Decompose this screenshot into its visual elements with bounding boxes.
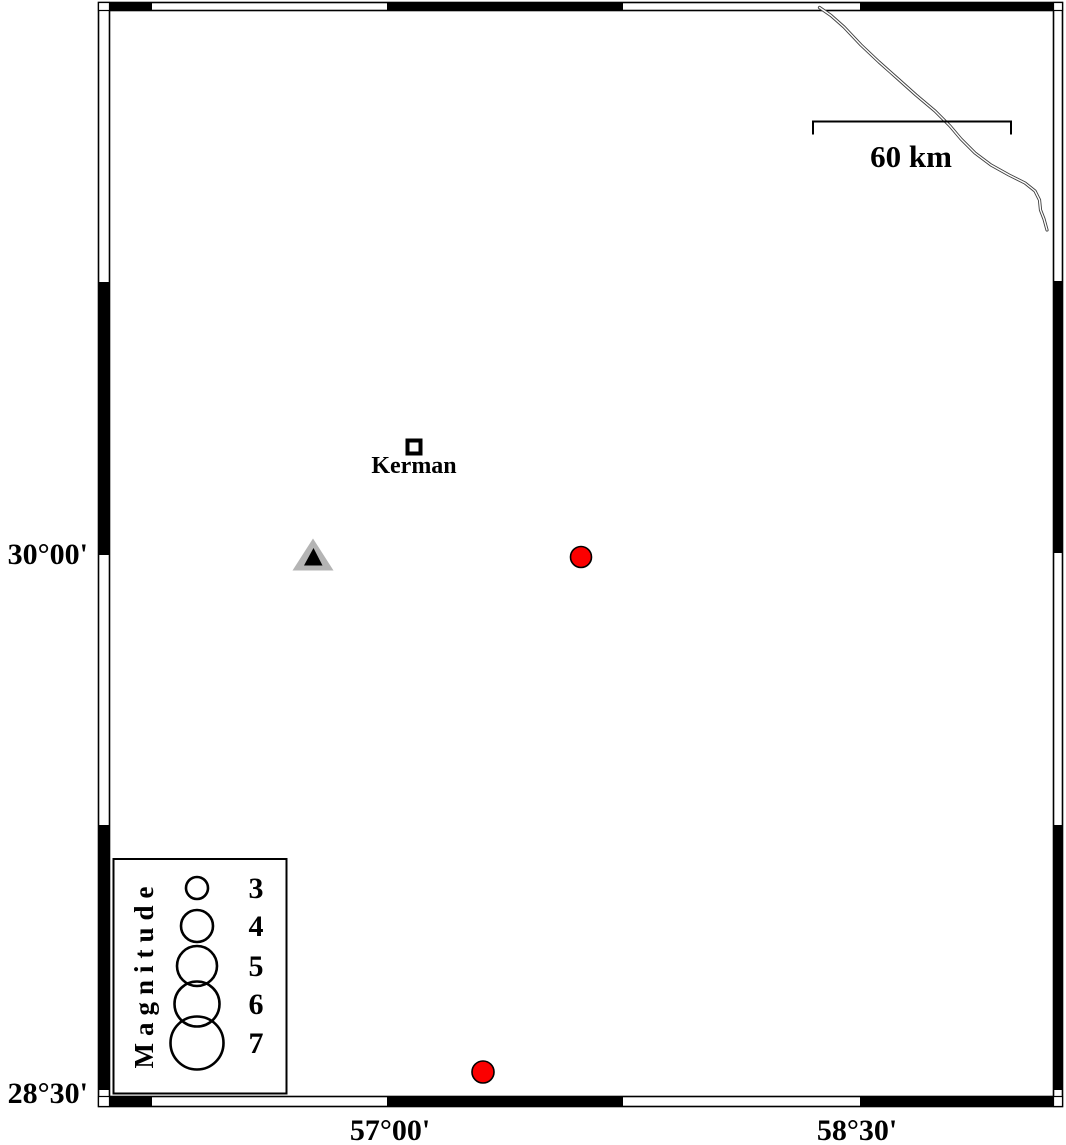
earthquake-marker — [571, 547, 592, 568]
frame-band-bottom-segment — [860, 1097, 1053, 1107]
legend-value-label: 6 — [249, 988, 264, 1021]
frame-band-bottom-segment — [387, 1097, 623, 1107]
legend-title: Magnitude — [129, 879, 159, 1068]
road-outline — [820, 8, 1048, 231]
lat-tick-label: 30°00' — [8, 538, 88, 571]
frame-corner-bottom-right — [1054, 1097, 1063, 1107]
frame-corner-top-left — [99, 3, 110, 11]
frame-corner-bottom-left — [99, 1097, 110, 1107]
legend-value-label: 4 — [249, 910, 264, 943]
city-square-marker — [408, 441, 421, 454]
frame-band-top-segment — [860, 3, 1053, 11]
legend-value-label: 5 — [249, 950, 264, 983]
road-centerline — [820, 8, 1048, 231]
station-marker — [293, 539, 334, 571]
lon-tick-label: 58°30' — [817, 1114, 897, 1145]
legend-value-label: 7 — [249, 1027, 264, 1060]
frame-band-top-segment — [387, 3, 623, 11]
frame-band-right-segment — [1054, 825, 1063, 1090]
magnitude-legend: Magnitude 3 4 5 6 7 — [114, 859, 287, 1094]
scale-bar-bracket — [813, 122, 1011, 135]
scale-bar-label: 60 km — [870, 139, 952, 174]
city-label: Kerman — [371, 453, 456, 479]
frame-band-bottom-segment — [108, 1097, 152, 1107]
legend-value-label: 3 — [249, 872, 264, 905]
lon-tick-label: 57°00' — [350, 1114, 430, 1145]
map-canvas: 60 km Kerman Magnitude 3 4 5 6 7 30°00' … — [0, 0, 1066, 1145]
frame-band-left-segment — [99, 825, 110, 1090]
frame-corner-top-right — [1054, 3, 1063, 11]
earthquake-marker — [472, 1061, 494, 1083]
city-kerman: Kerman — [371, 441, 456, 480]
scale-bar: 60 km — [813, 122, 1011, 175]
lat-tick-label: 28°30' — [8, 1077, 88, 1110]
road — [820, 8, 1048, 231]
frame-band-left-segment — [99, 282, 110, 555]
frame-band-right-segment — [1054, 281, 1063, 553]
map-figure: 60 km Kerman Magnitude 3 4 5 6 7 30°00' … — [0, 0, 1066, 1145]
frame-band-top-segment — [110, 3, 152, 11]
earthquake-markers — [472, 547, 592, 1084]
